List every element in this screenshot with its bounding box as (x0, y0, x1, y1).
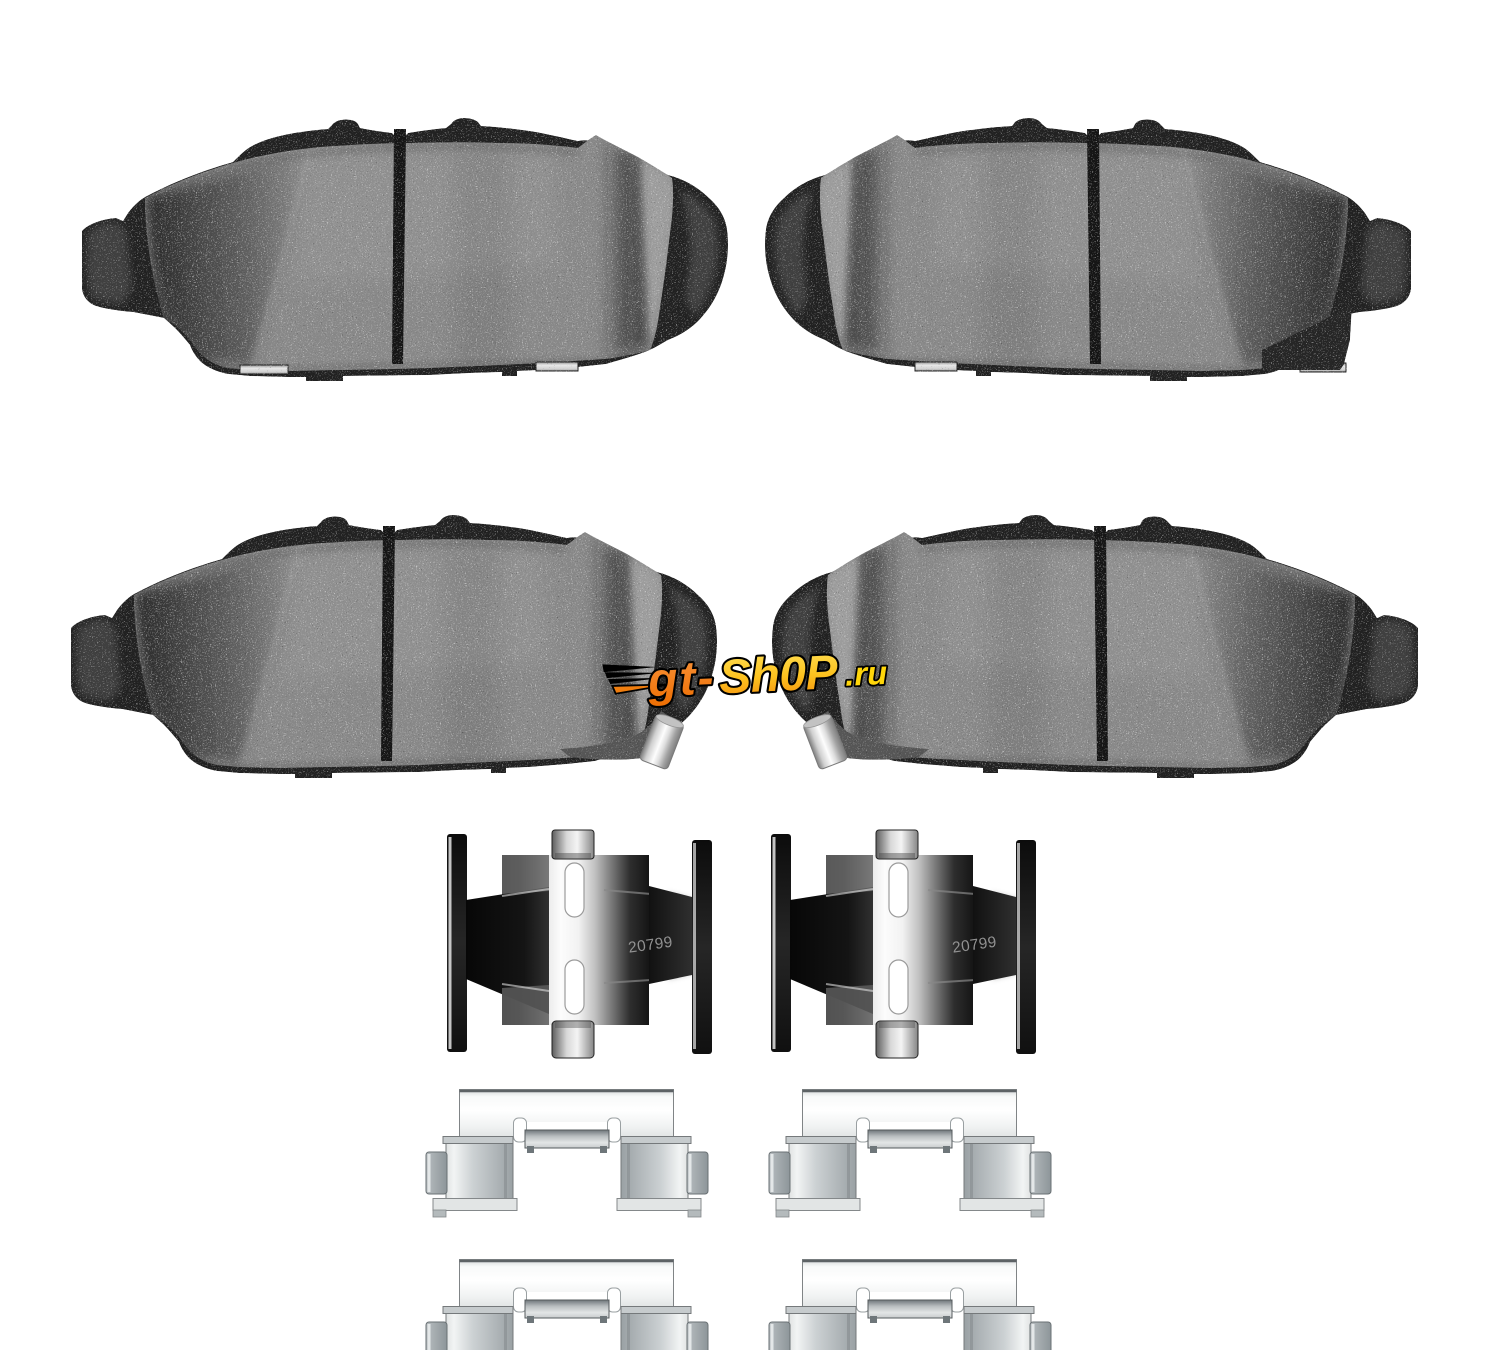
svg-text:Sh0P: Sh0P (718, 646, 840, 704)
svg-text:.ru: .ru (844, 654, 888, 693)
svg-text:gt-: gt- (646, 651, 717, 707)
